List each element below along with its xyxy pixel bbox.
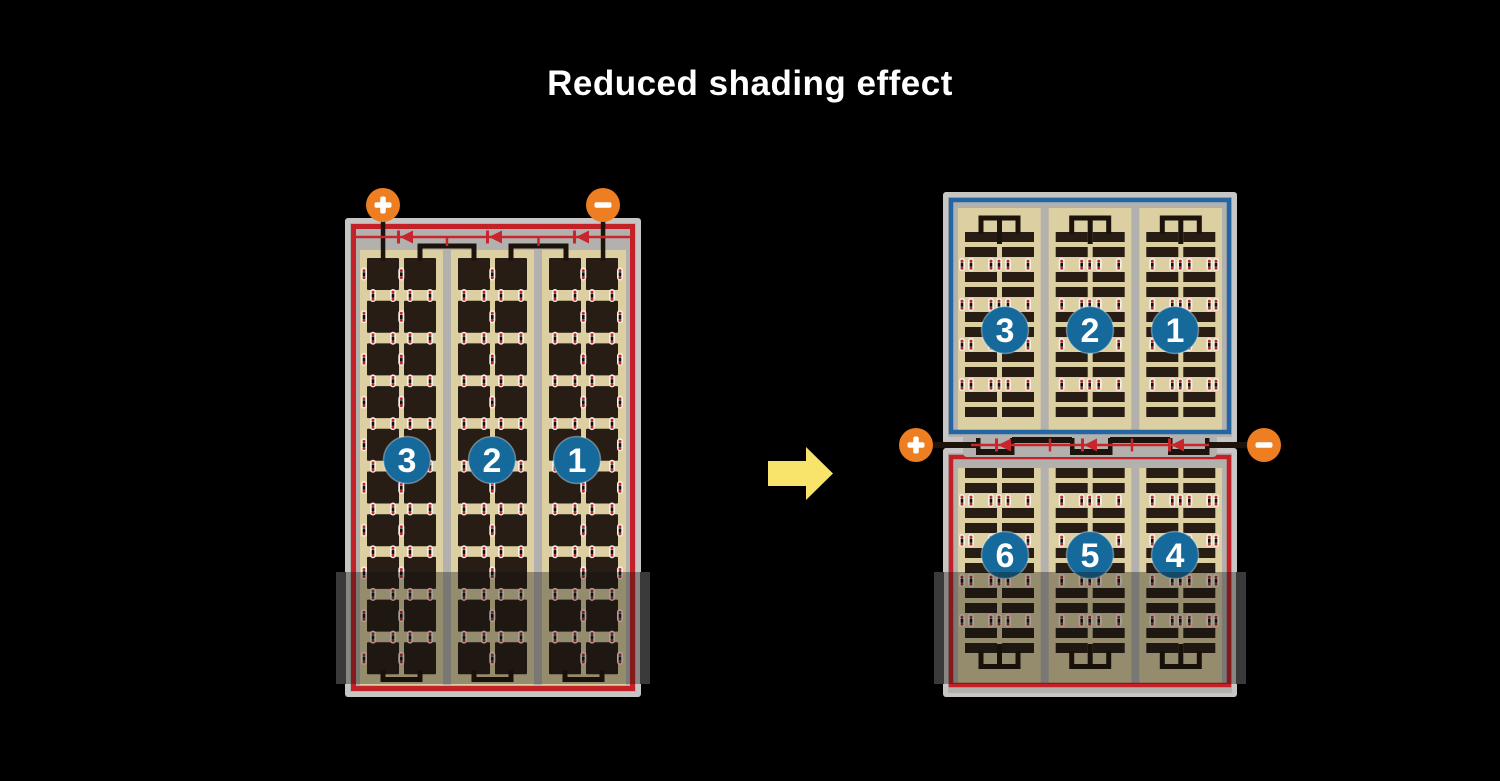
string-badge: 1 <box>554 437 601 484</box>
svg-text:5: 5 <box>1081 537 1100 575</box>
svg-text:4: 4 <box>1166 537 1185 575</box>
string-badge: 2 <box>469 437 516 484</box>
svg-text:3: 3 <box>398 442 417 480</box>
arrow-shape <box>768 447 833 500</box>
negative-terminal-icon <box>1247 428 1281 462</box>
shading-overlay <box>336 572 650 684</box>
string-badge: 3 <box>982 307 1029 354</box>
string-badge: 3 <box>384 437 431 484</box>
svg-text:1: 1 <box>1166 312 1185 350</box>
shading-overlay <box>934 572 1246 684</box>
string-badge: 4 <box>1152 532 1199 579</box>
string-badge: 2 <box>1067 307 1114 354</box>
svg-text:3: 3 <box>996 312 1015 350</box>
svg-text:6: 6 <box>996 537 1015 575</box>
diagram-title: Reduced shading effect <box>0 64 1500 104</box>
negative-terminal-icon <box>586 188 620 222</box>
string-badge: 1 <box>1152 307 1199 354</box>
single-module-diagram: 321 <box>300 173 686 703</box>
svg-text:1: 1 <box>568 442 587 480</box>
string-badge: 5 <box>1067 532 1114 579</box>
svg-text:2: 2 <box>483 442 502 480</box>
split-module-diagram: 321654 <box>893 182 1287 707</box>
svg-text:2: 2 <box>1081 312 1100 350</box>
positive-terminal-icon <box>899 428 933 462</box>
positive-terminal-icon <box>366 188 400 222</box>
transition-arrow-icon <box>768 447 833 500</box>
diagram-canvas: Reduced shading effect 321 321654 <box>0 0 1500 781</box>
string-badge: 6 <box>982 532 1029 579</box>
